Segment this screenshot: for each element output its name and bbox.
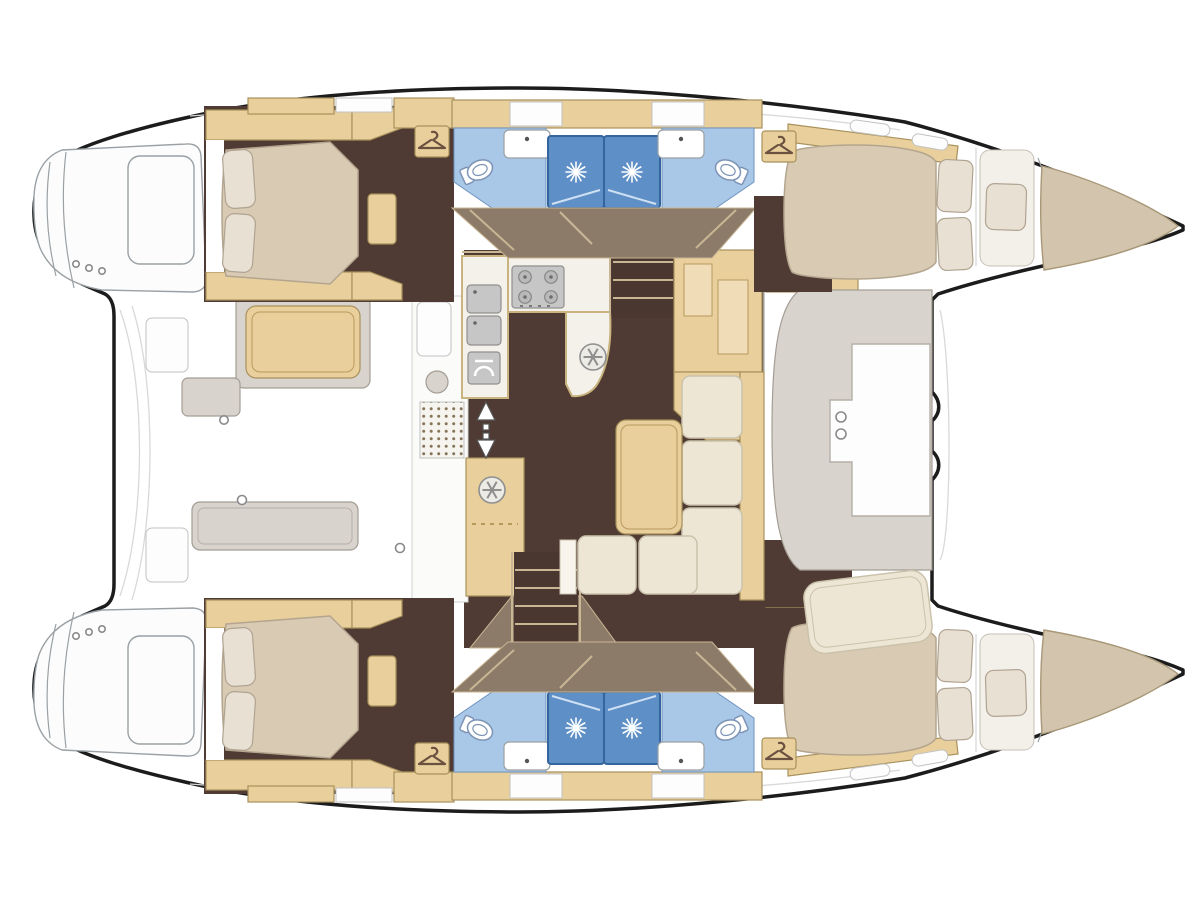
forward-settee (802, 569, 934, 656)
sofa-seat-cushion (578, 536, 636, 594)
cockpit-table (192, 502, 358, 550)
wet-bar-burner (426, 371, 448, 393)
sofa-end-table (560, 540, 576, 594)
floor-plan-page (0, 0, 1200, 900)
cabinet-door (718, 280, 748, 354)
instrument-dial (836, 429, 846, 439)
oven (468, 352, 500, 384)
cockpit-locker (146, 528, 188, 582)
wardrobe-stbd-aft (415, 743, 449, 774)
wardrobe-stbd-fwd (762, 738, 796, 769)
salon-table (616, 420, 682, 534)
sofa-cushion (682, 376, 742, 438)
catamaran-floor-plan (0, 0, 1200, 900)
deck-seam (940, 310, 949, 560)
cockpit-locker (146, 318, 188, 372)
entry-mat (420, 402, 464, 458)
helm-console (772, 290, 932, 570)
mooring-ring-icon (396, 544, 405, 553)
wardrobe-port-fwd (762, 131, 796, 162)
deck-hatch-wheel-icon (479, 477, 505, 503)
sofa-seat-cushion (639, 536, 697, 594)
wardrobe-port-aft (415, 126, 449, 157)
wet-bar-sink (417, 302, 451, 356)
deck-hatch-wheel-icon (580, 344, 606, 370)
cockpit-seat-cushion (246, 306, 360, 378)
stove (512, 266, 564, 308)
cockpit-bench (182, 378, 240, 416)
cabinet-door (684, 264, 712, 316)
mooring-ring-icon (238, 496, 247, 505)
side-cabinet-strip (740, 372, 764, 600)
instrument-dial (836, 412, 846, 422)
mooring-ring-icon (220, 416, 228, 424)
sofa-cushion (682, 441, 742, 505)
